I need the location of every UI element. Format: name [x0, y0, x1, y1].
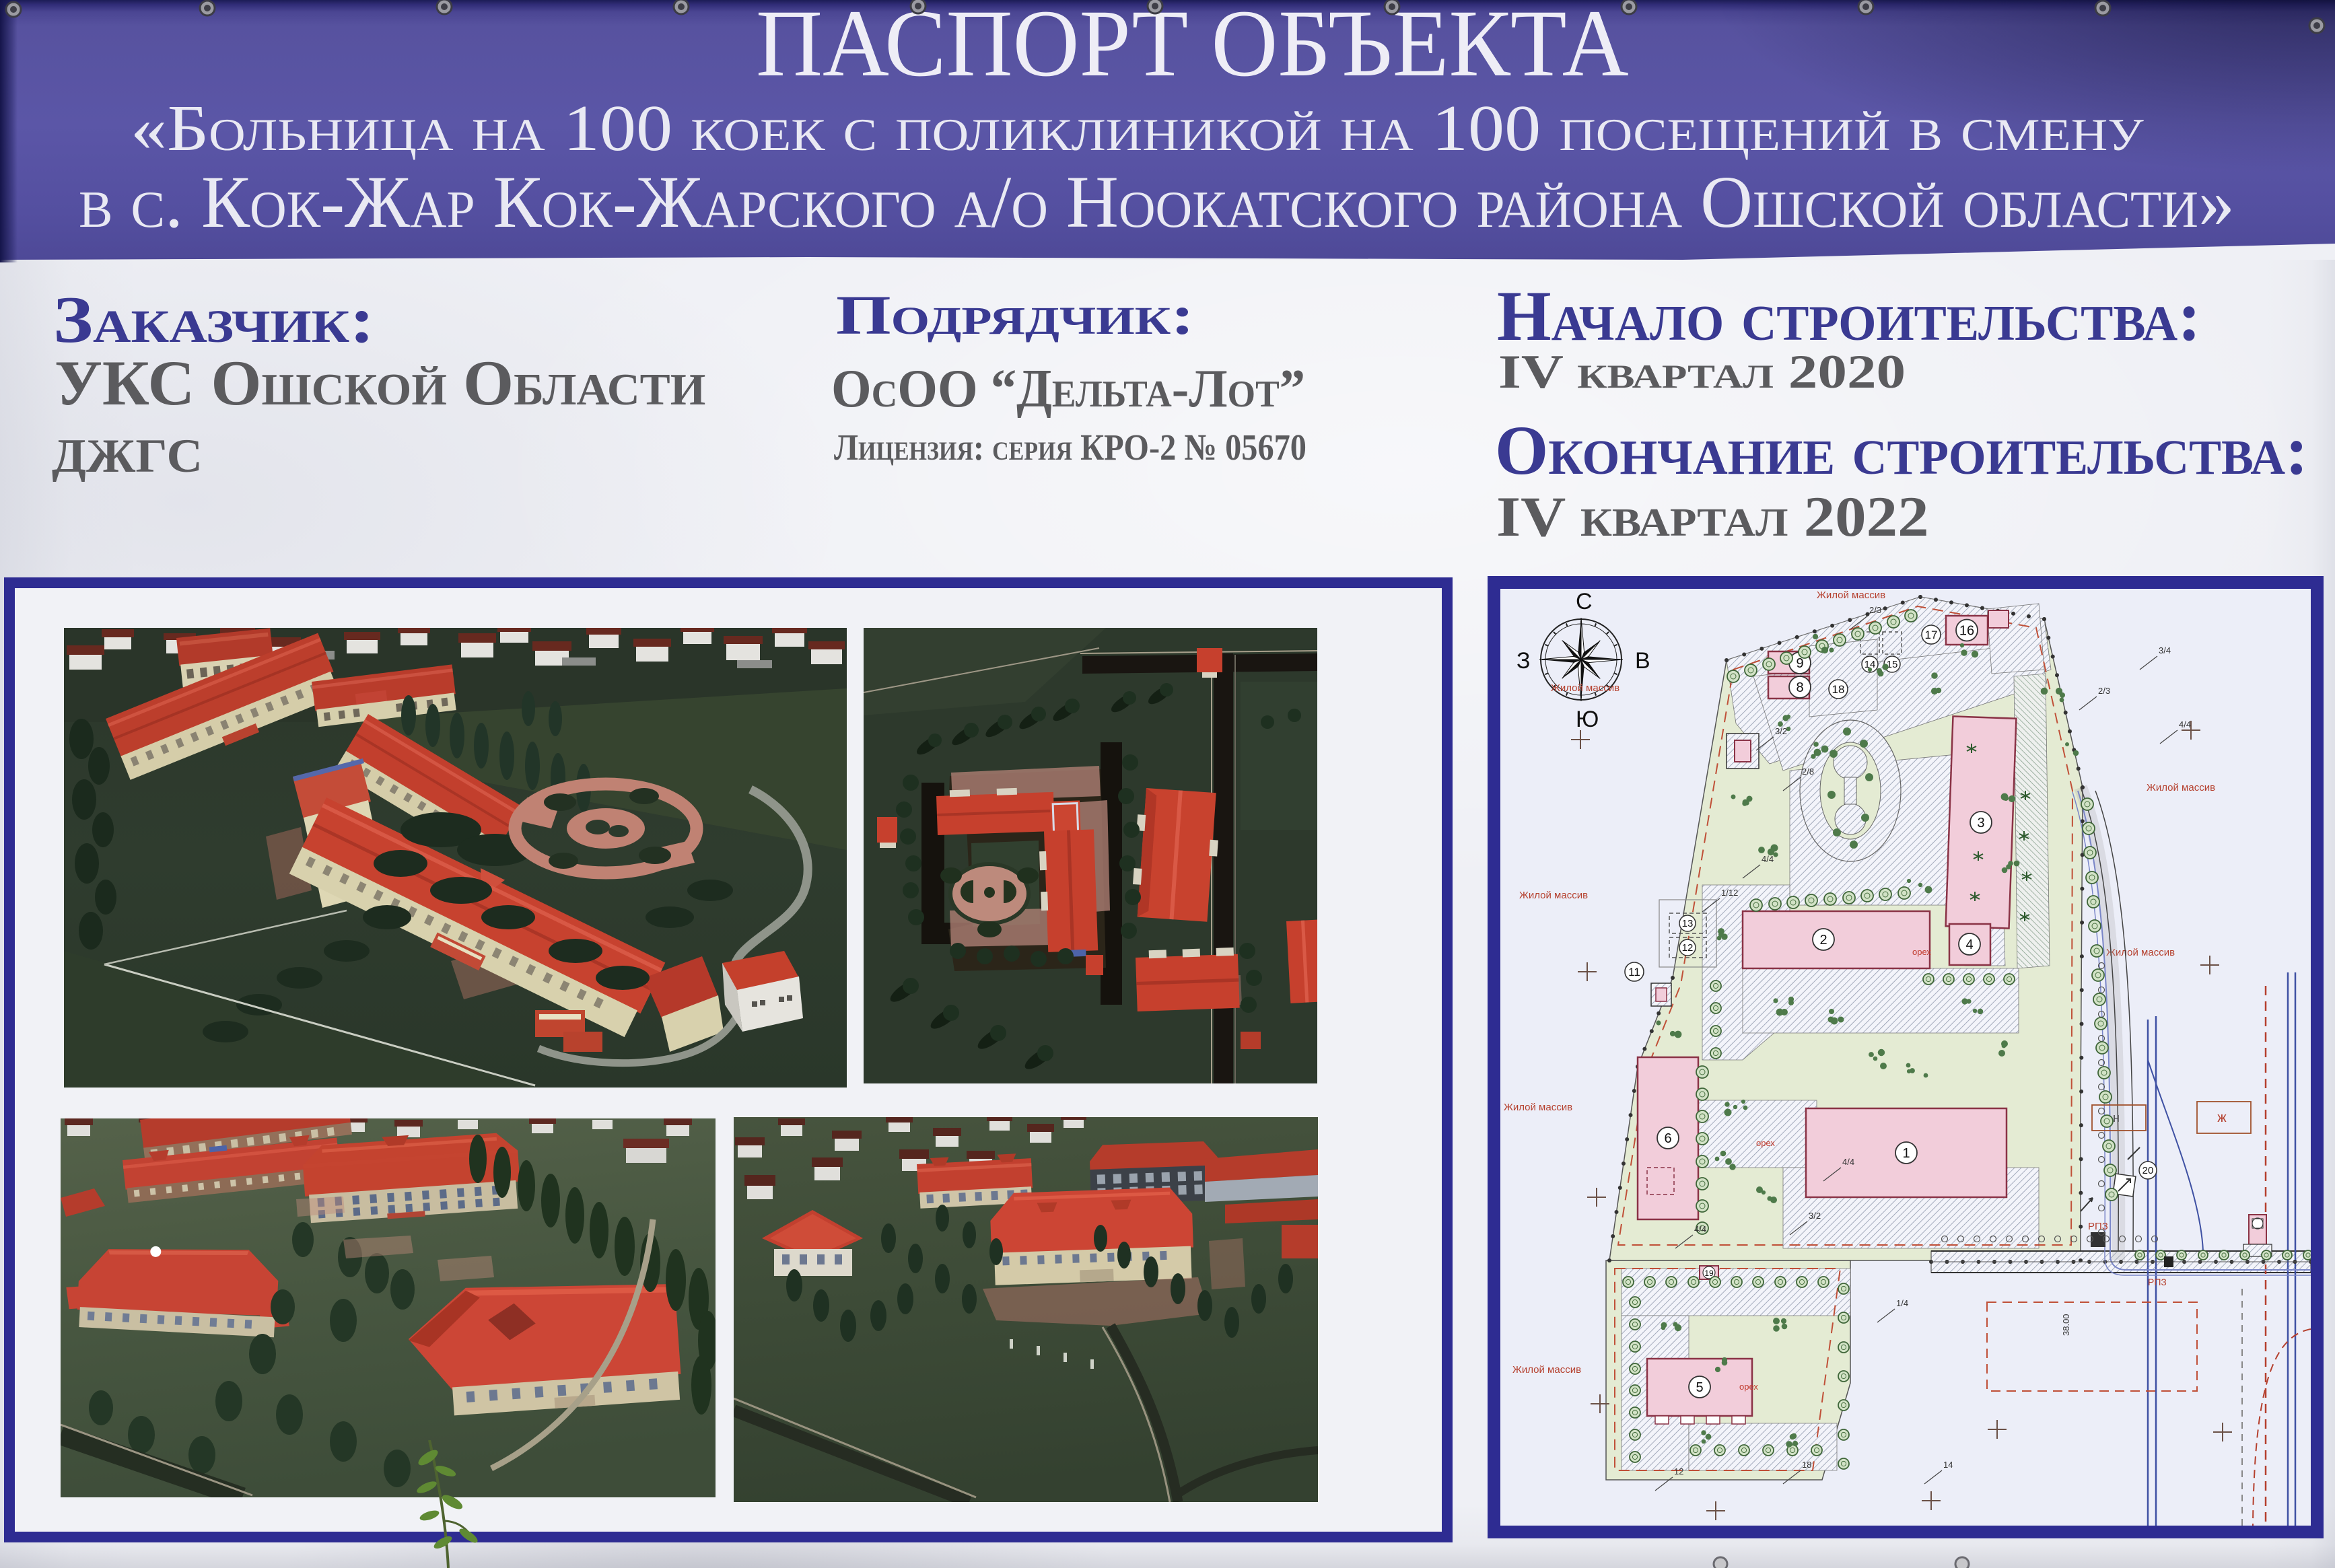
svg-text:18: 18	[1802, 1460, 1811, 1470]
svg-text:В: В	[1635, 648, 1650, 674]
svg-text:3: 3	[1977, 816, 1985, 830]
svg-text:4/4: 4/4	[1762, 854, 1774, 864]
svg-text:2/8: 2/8	[1802, 767, 1814, 777]
svg-text:Жилой массив: Жилой массив	[1519, 890, 1588, 901]
svg-text:4/4: 4/4	[1694, 1224, 1706, 1234]
svg-text:20: 20	[2142, 1165, 2154, 1176]
svg-text:1/4: 1/4	[1896, 1298, 1908, 1308]
svg-text:2: 2	[1819, 933, 1827, 948]
svg-text:н: н	[2113, 1111, 2120, 1125]
svg-text:5: 5	[1696, 1380, 1703, 1395]
svg-text:3/4: 3/4	[2159, 645, 2171, 655]
svg-text:2/3: 2/3	[2098, 686, 2110, 696]
svg-text:13: 13	[1682, 918, 1694, 929]
svg-text:12: 12	[1682, 942, 1694, 954]
svg-text:2/3: 2/3	[1869, 605, 1881, 615]
svg-text:РПЗ: РПЗ	[2148, 1277, 2167, 1287]
svg-text:Ю: Ю	[1576, 707, 1599, 732]
svg-text:С: С	[1576, 589, 1593, 614]
svg-text:4: 4	[1965, 937, 1973, 952]
svg-text:ж: ж	[2217, 1110, 2227, 1125]
svg-text:38.00: 38.00	[2061, 1314, 2071, 1336]
svg-text:17: 17	[1925, 629, 1938, 641]
svg-text:19: 19	[1704, 1269, 1714, 1278]
svg-text:Жилой массив: Жилой массив	[1817, 590, 1885, 601]
svg-text:8: 8	[1796, 680, 1803, 695]
svg-text:3/2: 3/2	[1809, 1211, 1821, 1221]
svg-text:11: 11	[1628, 966, 1640, 978]
svg-text:16: 16	[1959, 624, 1974, 639]
svg-text:орех: орех	[1912, 947, 1931, 957]
svg-text:3/2: 3/2	[1775, 726, 1787, 736]
svg-text:Жилой массив: Жилой массив	[1551, 682, 1619, 694]
svg-text:14: 14	[1943, 1460, 1953, 1470]
svg-text:6: 6	[1664, 1131, 1671, 1146]
svg-text:РПЗ: РПЗ	[2088, 1221, 2108, 1232]
svg-text:4/4: 4/4	[1842, 1157, 1854, 1167]
svg-text:1: 1	[1902, 1146, 1910, 1161]
svg-text:орех: орех	[1756, 1138, 1775, 1148]
svg-text:12: 12	[1674, 1466, 1683, 1476]
svg-text:З: З	[1517, 648, 1531, 674]
svg-text:Жилой массив: Жилой массив	[1504, 1102, 1572, 1113]
svg-text:Жилой массив: Жилой массив	[1512, 1364, 1581, 1376]
svg-text:4/4: 4/4	[2179, 719, 2191, 729]
svg-text:1/12: 1/12	[1721, 888, 1738, 898]
svg-text:орех: орех	[1739, 1382, 1758, 1392]
svg-text:Жилой массив: Жилой массив	[2147, 782, 2215, 793]
svg-text:15: 15	[1887, 659, 1898, 670]
svg-text:18: 18	[1832, 683, 1845, 696]
